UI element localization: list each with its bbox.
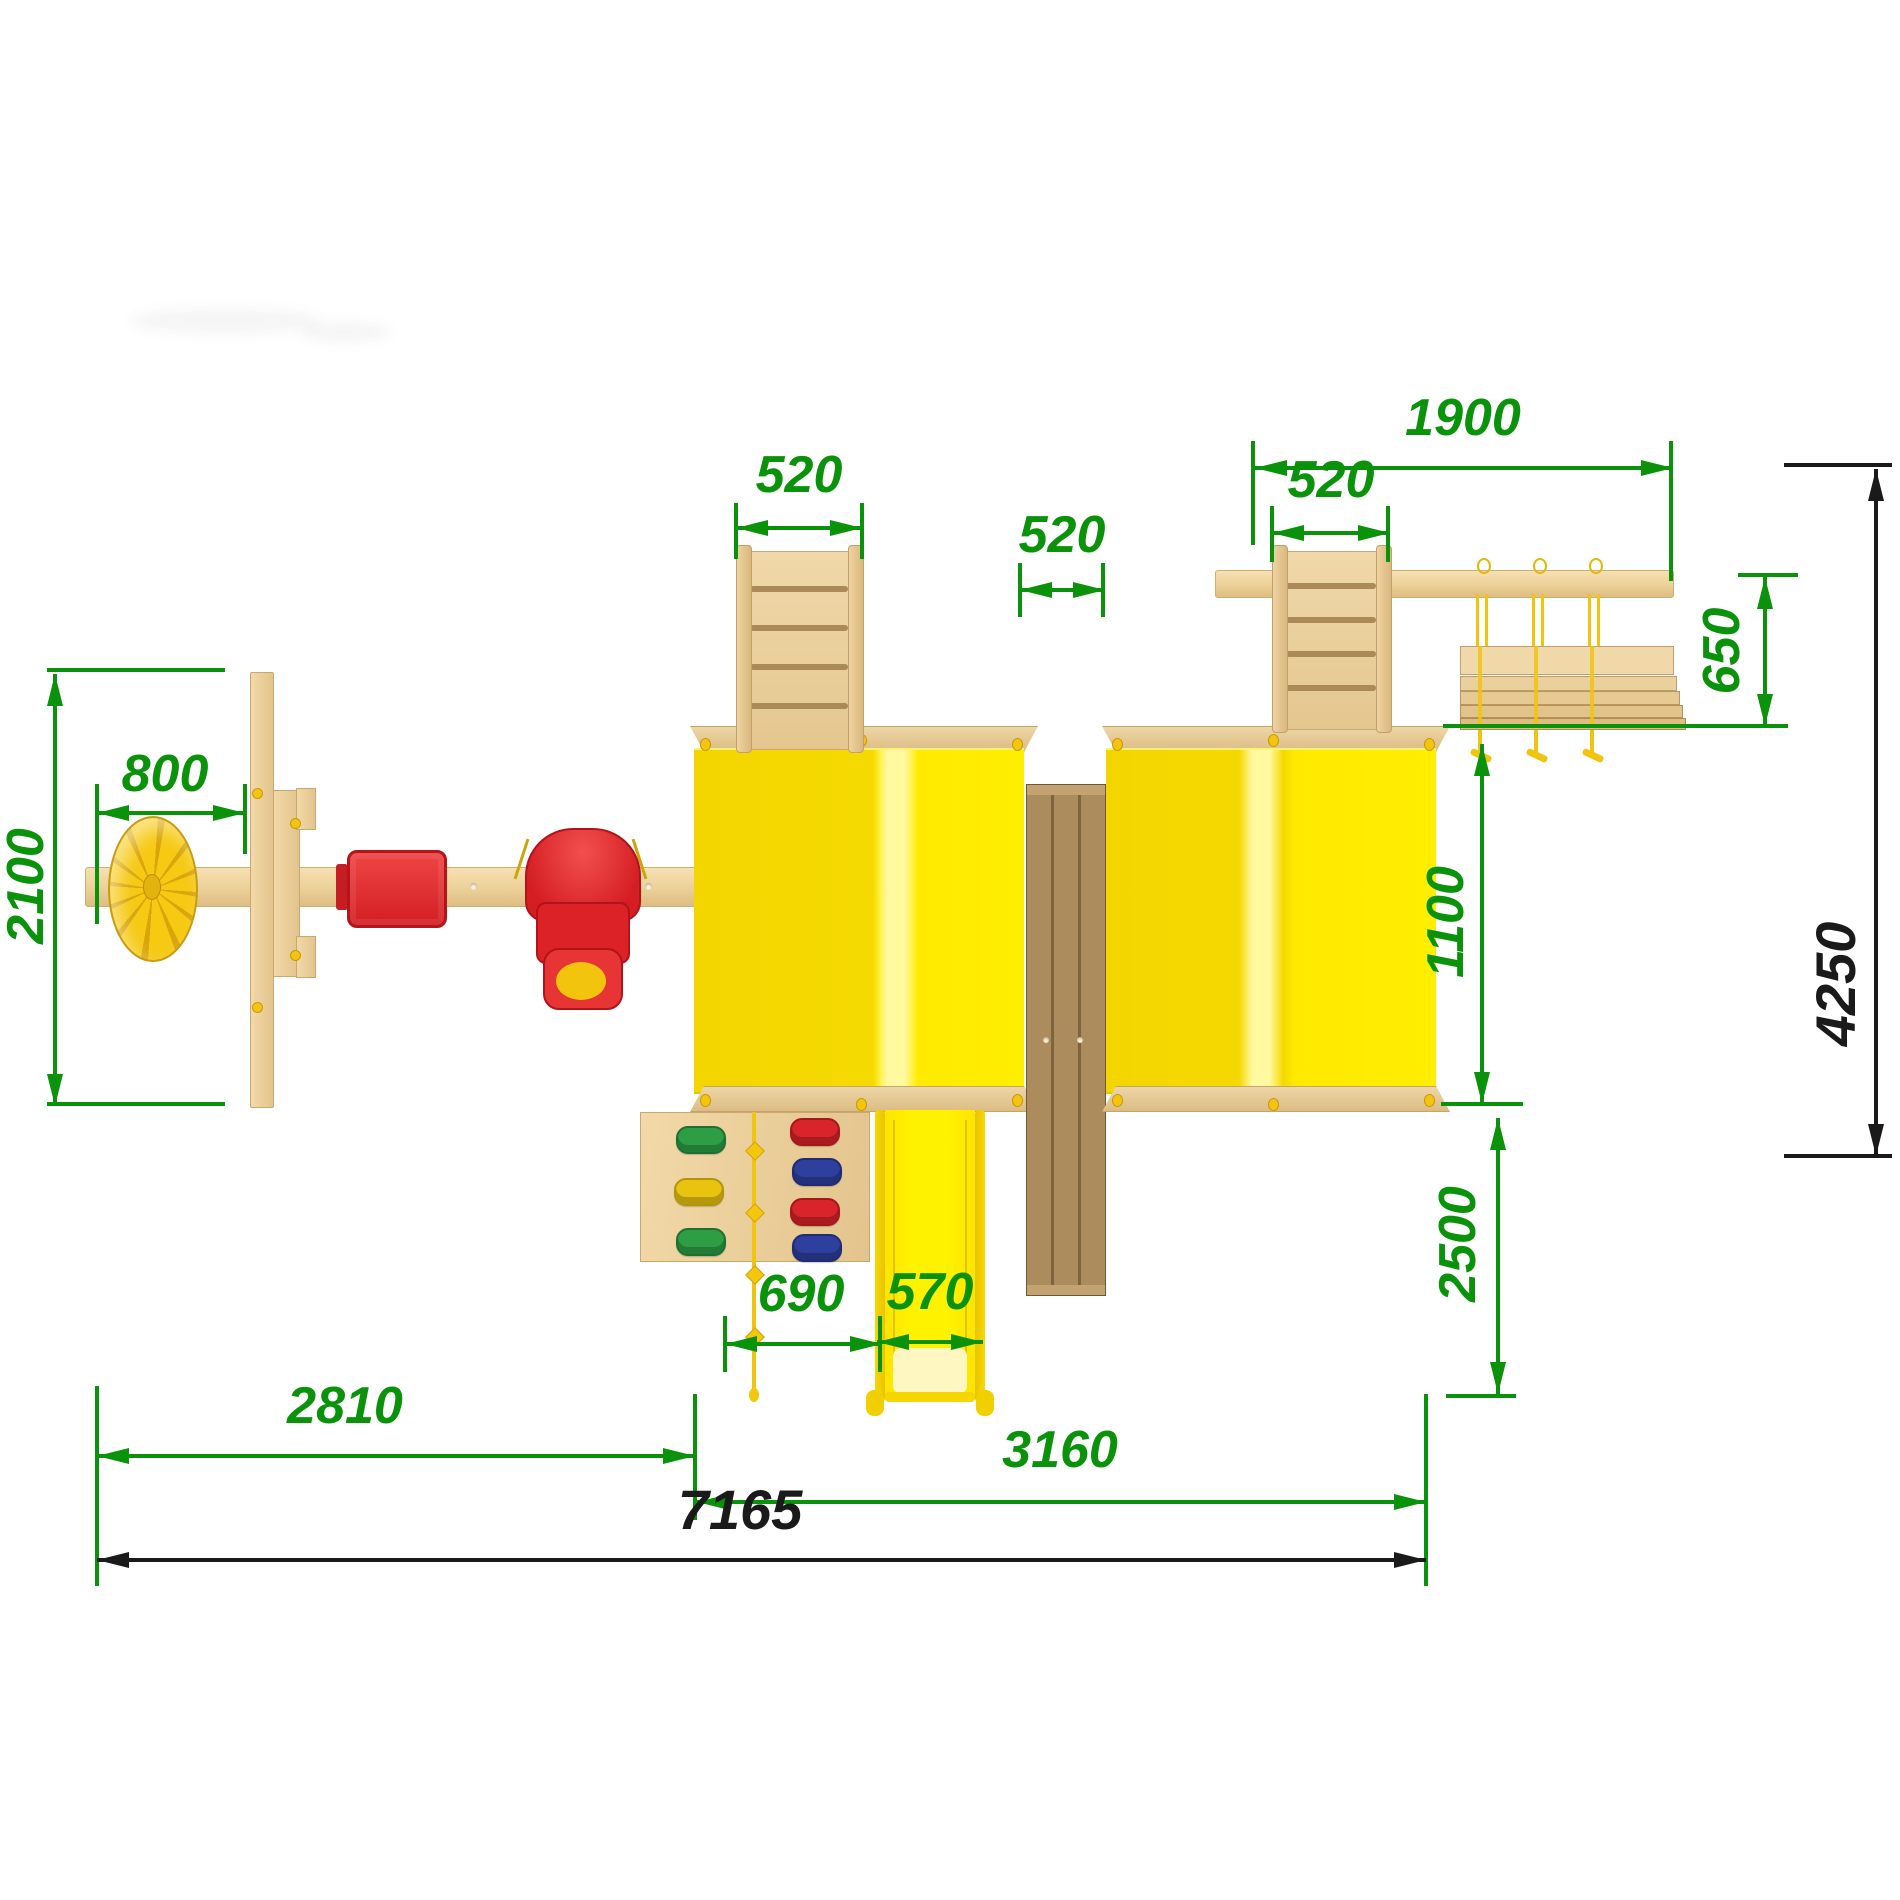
extension-line: [95, 784, 99, 924]
rope-end: [749, 1388, 759, 1402]
rope-loop-icon: [1589, 558, 1603, 574]
dim-label-650: 650: [1696, 571, 1748, 731]
playground-top-view-drawing: 2100 800 520 520 520: [0, 0, 1900, 1900]
ladder-rung-gap: [1286, 617, 1376, 623]
arrowhead-right-icon: [1394, 1552, 1426, 1568]
extension-line: [1441, 1102, 1523, 1106]
rope-loop-icon: [1477, 558, 1491, 574]
bolt: [1112, 1094, 1123, 1107]
rope-anchor: [1534, 730, 1538, 752]
arrowhead-up-icon: [1757, 577, 1773, 609]
hanging-rope: [1476, 594, 1479, 648]
climb-hold-red: [790, 1118, 840, 1146]
dim-label-7165: 7165: [620, 1482, 860, 1538]
plank-slat: [1460, 676, 1677, 691]
ladder-rung-gap: [750, 703, 848, 709]
rope-anchor: [1590, 730, 1594, 752]
arrowhead-left-icon: [736, 520, 768, 536]
ladder-rung-gap: [750, 586, 848, 592]
extension-line: [243, 784, 247, 854]
dim-label-3160: 3160: [945, 1424, 1175, 1476]
render-artifact: [300, 322, 390, 342]
dim-label-570: 570: [855, 1266, 1005, 1318]
bridge-deck: [1026, 784, 1106, 1296]
arrowhead-down-icon: [1474, 1072, 1490, 1104]
climb-hold-blue: [792, 1234, 842, 1262]
bolt: [700, 1094, 711, 1107]
roof-ridge-highlight: [874, 750, 918, 1092]
bridge-screw: [1043, 1037, 1049, 1043]
arrowhead-right-icon: [1358, 525, 1390, 541]
bolt: [290, 950, 301, 961]
plank-slat: [1460, 705, 1683, 718]
bridge-end-cap: [1027, 785, 1105, 795]
dim-label-2500: 2500: [1432, 1149, 1484, 1339]
arrowhead-up-icon: [1490, 1118, 1506, 1150]
right-tower-roof: [1106, 748, 1436, 1094]
arrowhead-down-icon: [1757, 694, 1773, 726]
arrowhead-down-icon: [1490, 1362, 1506, 1394]
dim-label-2810: 2810: [230, 1380, 460, 1432]
bridge-end-cap: [1027, 1285, 1105, 1295]
hanging-rope: [1541, 594, 1544, 648]
bolt: [1268, 1098, 1279, 1111]
ladder-rung-gap: [1286, 685, 1376, 691]
dim-line: [1874, 469, 1878, 1156]
dim-label-520-middle: 520: [987, 509, 1137, 561]
extension-line: [47, 668, 225, 672]
bolt: [252, 788, 263, 799]
dim-line: [1496, 1118, 1500, 1394]
dim-label-2100: 2100: [0, 801, 52, 971]
bridge-screw: [1077, 1037, 1083, 1043]
arrowhead-left-icon: [1272, 525, 1304, 541]
slide-foot: [976, 1390, 994, 1416]
bolt: [1268, 734, 1279, 747]
arrowhead-left-icon: [1020, 582, 1052, 598]
bolt: [1012, 738, 1023, 751]
slide-foot: [866, 1390, 884, 1416]
arrowhead-left-icon: [97, 1552, 129, 1568]
dim-label-800: 800: [90, 748, 240, 800]
climb-hold-green: [676, 1126, 726, 1154]
slide-end-zone: [893, 1348, 967, 1394]
bolt: [1112, 738, 1123, 751]
arrowhead-right-icon: [663, 1448, 695, 1464]
baby-swing-bucket-inner: [556, 962, 606, 1000]
bolt: [252, 1002, 263, 1013]
bolt: [856, 1098, 867, 1111]
climb-hold-red: [790, 1198, 840, 1226]
slide-rail: [975, 1110, 985, 1402]
arrowhead-right-icon: [830, 520, 862, 536]
beam-hole: [645, 883, 652, 890]
arrowhead-left-icon: [1255, 460, 1287, 476]
bolt: [1424, 738, 1435, 751]
dim-label-690: 690: [726, 1268, 876, 1320]
arrowhead-right-icon: [1641, 460, 1673, 476]
climb-hold-blue: [792, 1158, 842, 1186]
rope-loop-icon: [1533, 558, 1547, 574]
ladder-rung-gap: [750, 664, 848, 670]
arrowhead-left-icon: [97, 1448, 129, 1464]
arrowhead-right-icon: [213, 805, 245, 821]
extension-line: [47, 1102, 225, 1106]
left-tower-roof: [694, 748, 1024, 1094]
plank-slat: [1460, 691, 1680, 705]
bolt: [700, 738, 711, 751]
climb-hold-green: [676, 1228, 726, 1256]
hanging-rope: [1597, 594, 1600, 648]
ladder-rail: [736, 545, 752, 753]
roof-ridge-highlight: [1239, 750, 1283, 1092]
arrowhead-right-icon: [951, 1334, 983, 1350]
beam-hole: [470, 883, 477, 890]
steering-wheel-hub: [143, 874, 161, 900]
ladder-slats: [1286, 551, 1378, 730]
dim-label-1900: 1900: [1348, 392, 1578, 444]
climb-hold-yellow: [674, 1178, 724, 1206]
extension-line: [1251, 441, 1255, 545]
hanging-rope: [1532, 594, 1535, 648]
bolt: [1424, 1094, 1435, 1107]
dim-line: [1255, 466, 1673, 470]
hanging-rope: [1485, 594, 1488, 648]
rope-through-slats: [1534, 646, 1538, 728]
hanging-rope: [1588, 594, 1591, 648]
ladder-rung-gap: [1286, 583, 1376, 589]
dim-label-4250: 4250: [1808, 869, 1864, 1099]
flat-swing-seat: [347, 850, 447, 928]
ladder-rail: [1376, 545, 1392, 733]
dim-line: [1480, 744, 1484, 1104]
arrowhead-right-icon: [1073, 582, 1105, 598]
arrowhead-down-icon: [1868, 1124, 1884, 1156]
dim-line: [97, 1454, 695, 1458]
ladder-rail: [1272, 545, 1288, 733]
arrowhead-up-icon: [47, 674, 63, 706]
arrowhead-up-icon: [1868, 469, 1884, 501]
slide-bottom-edge: [885, 1392, 975, 1402]
arrowhead-right-icon: [1394, 1494, 1426, 1510]
ladder-rail: [848, 545, 864, 753]
extension-line: [1446, 1394, 1516, 1398]
ladder-rung-gap: [750, 625, 848, 631]
ladder-slats: [750, 551, 850, 750]
bolt: [290, 818, 301, 829]
render-artifact: [130, 308, 320, 334]
swing-frame-post: [250, 672, 274, 1108]
arrowhead-left-icon: [877, 1334, 909, 1350]
dim-label-1100: 1100: [1420, 827, 1472, 1017]
rope-through-slats: [1478, 646, 1482, 728]
ladder-rung-gap: [1286, 651, 1376, 657]
plank-slat: [1460, 646, 1674, 675]
arrowhead-up-icon: [1474, 744, 1490, 776]
dim-line: [97, 1558, 1426, 1562]
extension-line: [1784, 463, 1892, 467]
arrowhead-left-icon: [97, 805, 129, 821]
dim-label-520-left: 520: [724, 449, 874, 501]
arrowhead-left-icon: [725, 1336, 757, 1352]
rope-through-slats: [1590, 646, 1594, 728]
bolt: [1012, 1094, 1023, 1107]
